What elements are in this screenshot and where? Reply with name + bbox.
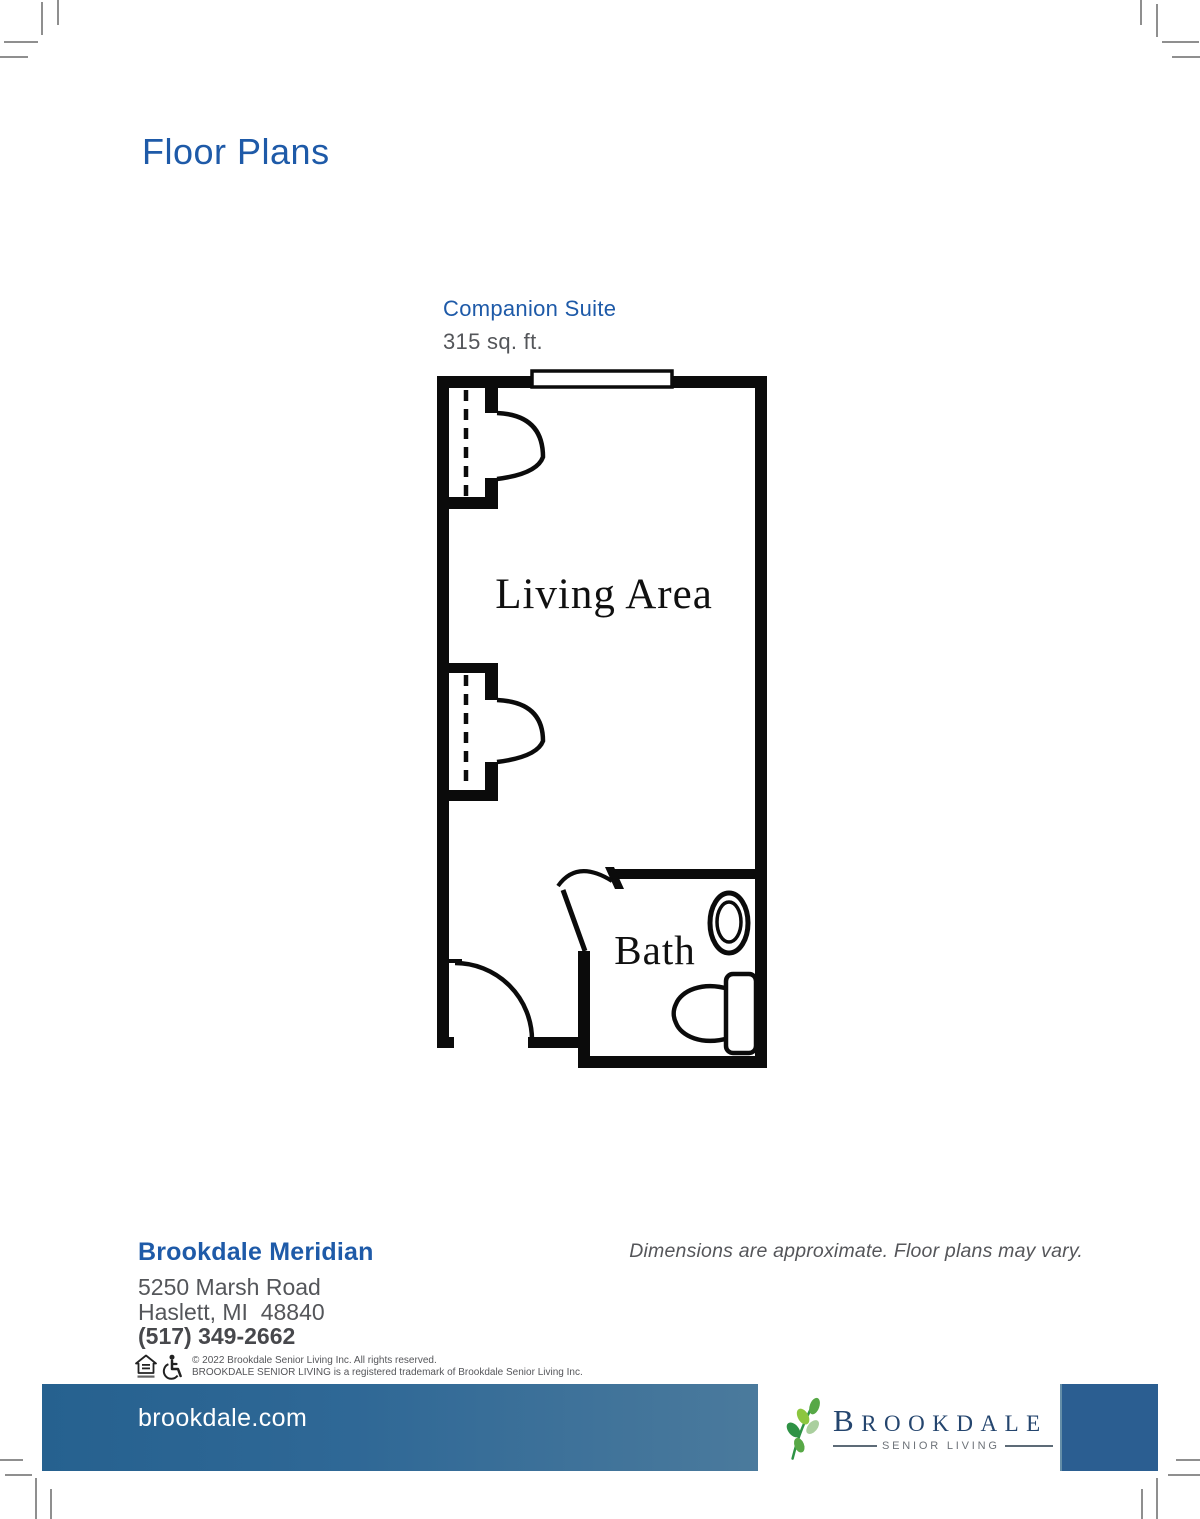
crop-mark — [50, 1489, 52, 1519]
window — [532, 371, 672, 387]
crop-mark — [1140, 0, 1142, 25]
wall-segment — [437, 663, 498, 673]
website-text: brookdale.com — [138, 1404, 307, 1433]
bath-door-swing — [558, 871, 612, 886]
community-info: Brookdale Meridian 5250 Marsh Road Hasle… — [138, 1238, 374, 1349]
logo-tagline-row: SENIOR LIVING — [833, 1440, 1053, 1452]
leaf-logo-icon — [784, 1397, 826, 1461]
equal-housing-icon — [135, 1354, 157, 1381]
crop-mark — [1162, 41, 1199, 43]
wall-segment — [755, 376, 767, 1068]
legal-row: © 2022 Brookdale Senior Living Inc. All … — [135, 1354, 583, 1381]
footer-bar-end-block — [1062, 1384, 1158, 1471]
community-address-line1: 5250 Marsh Road — [138, 1275, 374, 1300]
legal-line1: © 2022 Brookdale Senior Living Inc. All … — [192, 1355, 583, 1367]
logo-rule-right — [1005, 1445, 1053, 1447]
entry-door-swing — [455, 963, 532, 1040]
crop-mark — [1156, 4, 1158, 37]
crop-mark — [0, 56, 28, 58]
crop-mark — [4, 41, 38, 43]
wall-segment — [578, 1056, 767, 1068]
doors-and-closets — [447, 390, 612, 1040]
community-address-line2: Haslett, MI 48840 — [138, 1300, 374, 1325]
legal-text: © 2022 Brookdale Senior Living Inc. All … — [192, 1354, 583, 1378]
wall-segment — [614, 869, 767, 879]
bath-fixtures — [674, 893, 756, 1053]
disclaimer-text: Dimensions are approximate. Floor plans … — [629, 1240, 1083, 1263]
crop-mark — [41, 2, 43, 35]
logo-tagline: SENIOR LIVING — [882, 1440, 1000, 1452]
crop-mark — [1168, 1474, 1200, 1476]
logo-rule-left — [833, 1445, 877, 1447]
crop-mark — [35, 1478, 37, 1519]
logo-text: BROOKDALE SENIOR LIVING — [833, 1406, 1053, 1452]
closet-door-swing — [497, 413, 543, 479]
closet-door-swing — [497, 700, 543, 762]
wall-segment — [437, 790, 498, 801]
community-phone: (517) 349-2662 — [138, 1324, 374, 1349]
wall-segment — [437, 497, 498, 509]
toilet-tank-icon — [726, 974, 756, 1053]
wheelchair-icon — [161, 1354, 184, 1381]
wall-segment — [671, 376, 767, 388]
page: Floor Plans Companion Suite 315 sq. ft. — [0, 0, 1200, 1519]
room-label-bath: Bath — [614, 927, 695, 973]
crop-mark — [1176, 1459, 1200, 1461]
community-name: Brookdale Meridian — [138, 1238, 374, 1267]
wall-segment — [485, 762, 498, 790]
wall-segment — [437, 1037, 454, 1048]
legal-line2: BROOKDALE SENIOR LIVING is a registered … — [192, 1367, 583, 1379]
crop-mark — [1172, 56, 1200, 58]
wall-segment — [437, 376, 449, 1048]
crop-mark — [5, 1474, 32, 1476]
plan-area: 315 sq. ft. — [443, 329, 616, 355]
floor-plan: Living Area Bath — [420, 360, 790, 1090]
logo-wordmark: BROOKDALE — [833, 1406, 1053, 1439]
crop-mark — [57, 0, 59, 25]
plan-header: Companion Suite 315 sq. ft. — [443, 296, 616, 355]
crop-mark — [0, 1459, 23, 1461]
wall-segment — [485, 672, 498, 700]
room-label-living-area: Living Area — [495, 571, 713, 618]
crop-mark — [1141, 1489, 1143, 1519]
page-title: Floor Plans — [142, 131, 330, 173]
plan-name: Companion Suite — [443, 296, 616, 322]
sink-basin-icon — [717, 902, 741, 942]
crop-mark — [1156, 1478, 1158, 1519]
wall-segment — [578, 951, 590, 1068]
toilet-bowl-icon — [674, 986, 729, 1041]
brookdale-logo: BROOKDALE SENIOR LIVING — [758, 1382, 1060, 1475]
walls — [437, 376, 767, 1068]
wall-segment — [528, 1037, 578, 1048]
wall-segment — [485, 386, 498, 413]
bath-door-leaf — [563, 890, 585, 951]
